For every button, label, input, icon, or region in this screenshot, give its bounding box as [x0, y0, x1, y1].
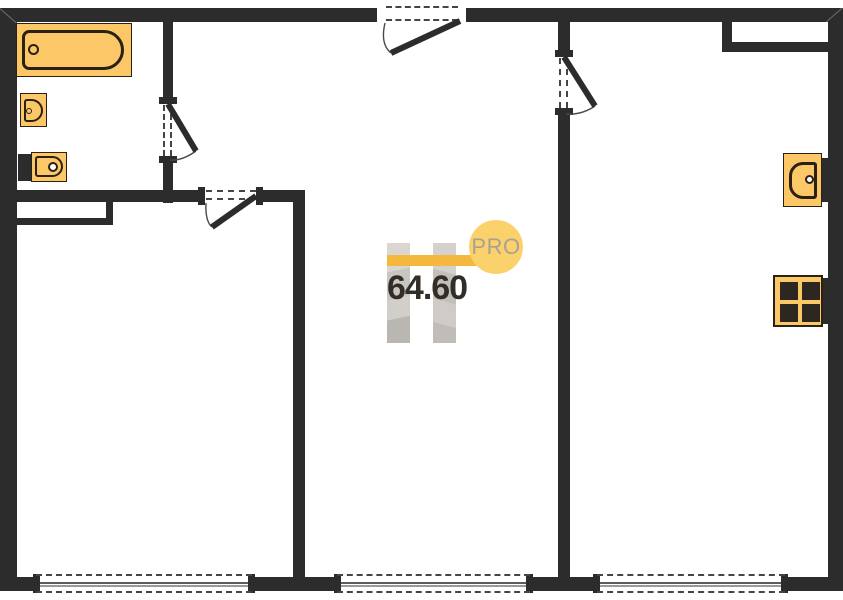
pro-badge-label: PRO	[471, 234, 520, 260]
door-bathroom-south	[206, 196, 256, 227]
toilet-icon	[31, 152, 67, 182]
watermark: PRO 64.60	[385, 215, 555, 355]
wall-washbasin-icon	[783, 153, 822, 207]
area-value: 64.60	[387, 269, 467, 308]
bathtub-icon	[16, 23, 132, 77]
toilet-tank	[18, 154, 32, 181]
washbasin-icon	[20, 93, 47, 127]
logo-crossbar	[387, 255, 478, 266]
door-right-room	[564, 57, 595, 114]
door-bathroom-east	[168, 104, 196, 160]
pro-badge: PRO	[469, 220, 523, 274]
floor-plan: PRO 64.60	[0, 0, 843, 600]
door-entrance	[383, 21, 460, 53]
stove-icon	[773, 275, 823, 327]
